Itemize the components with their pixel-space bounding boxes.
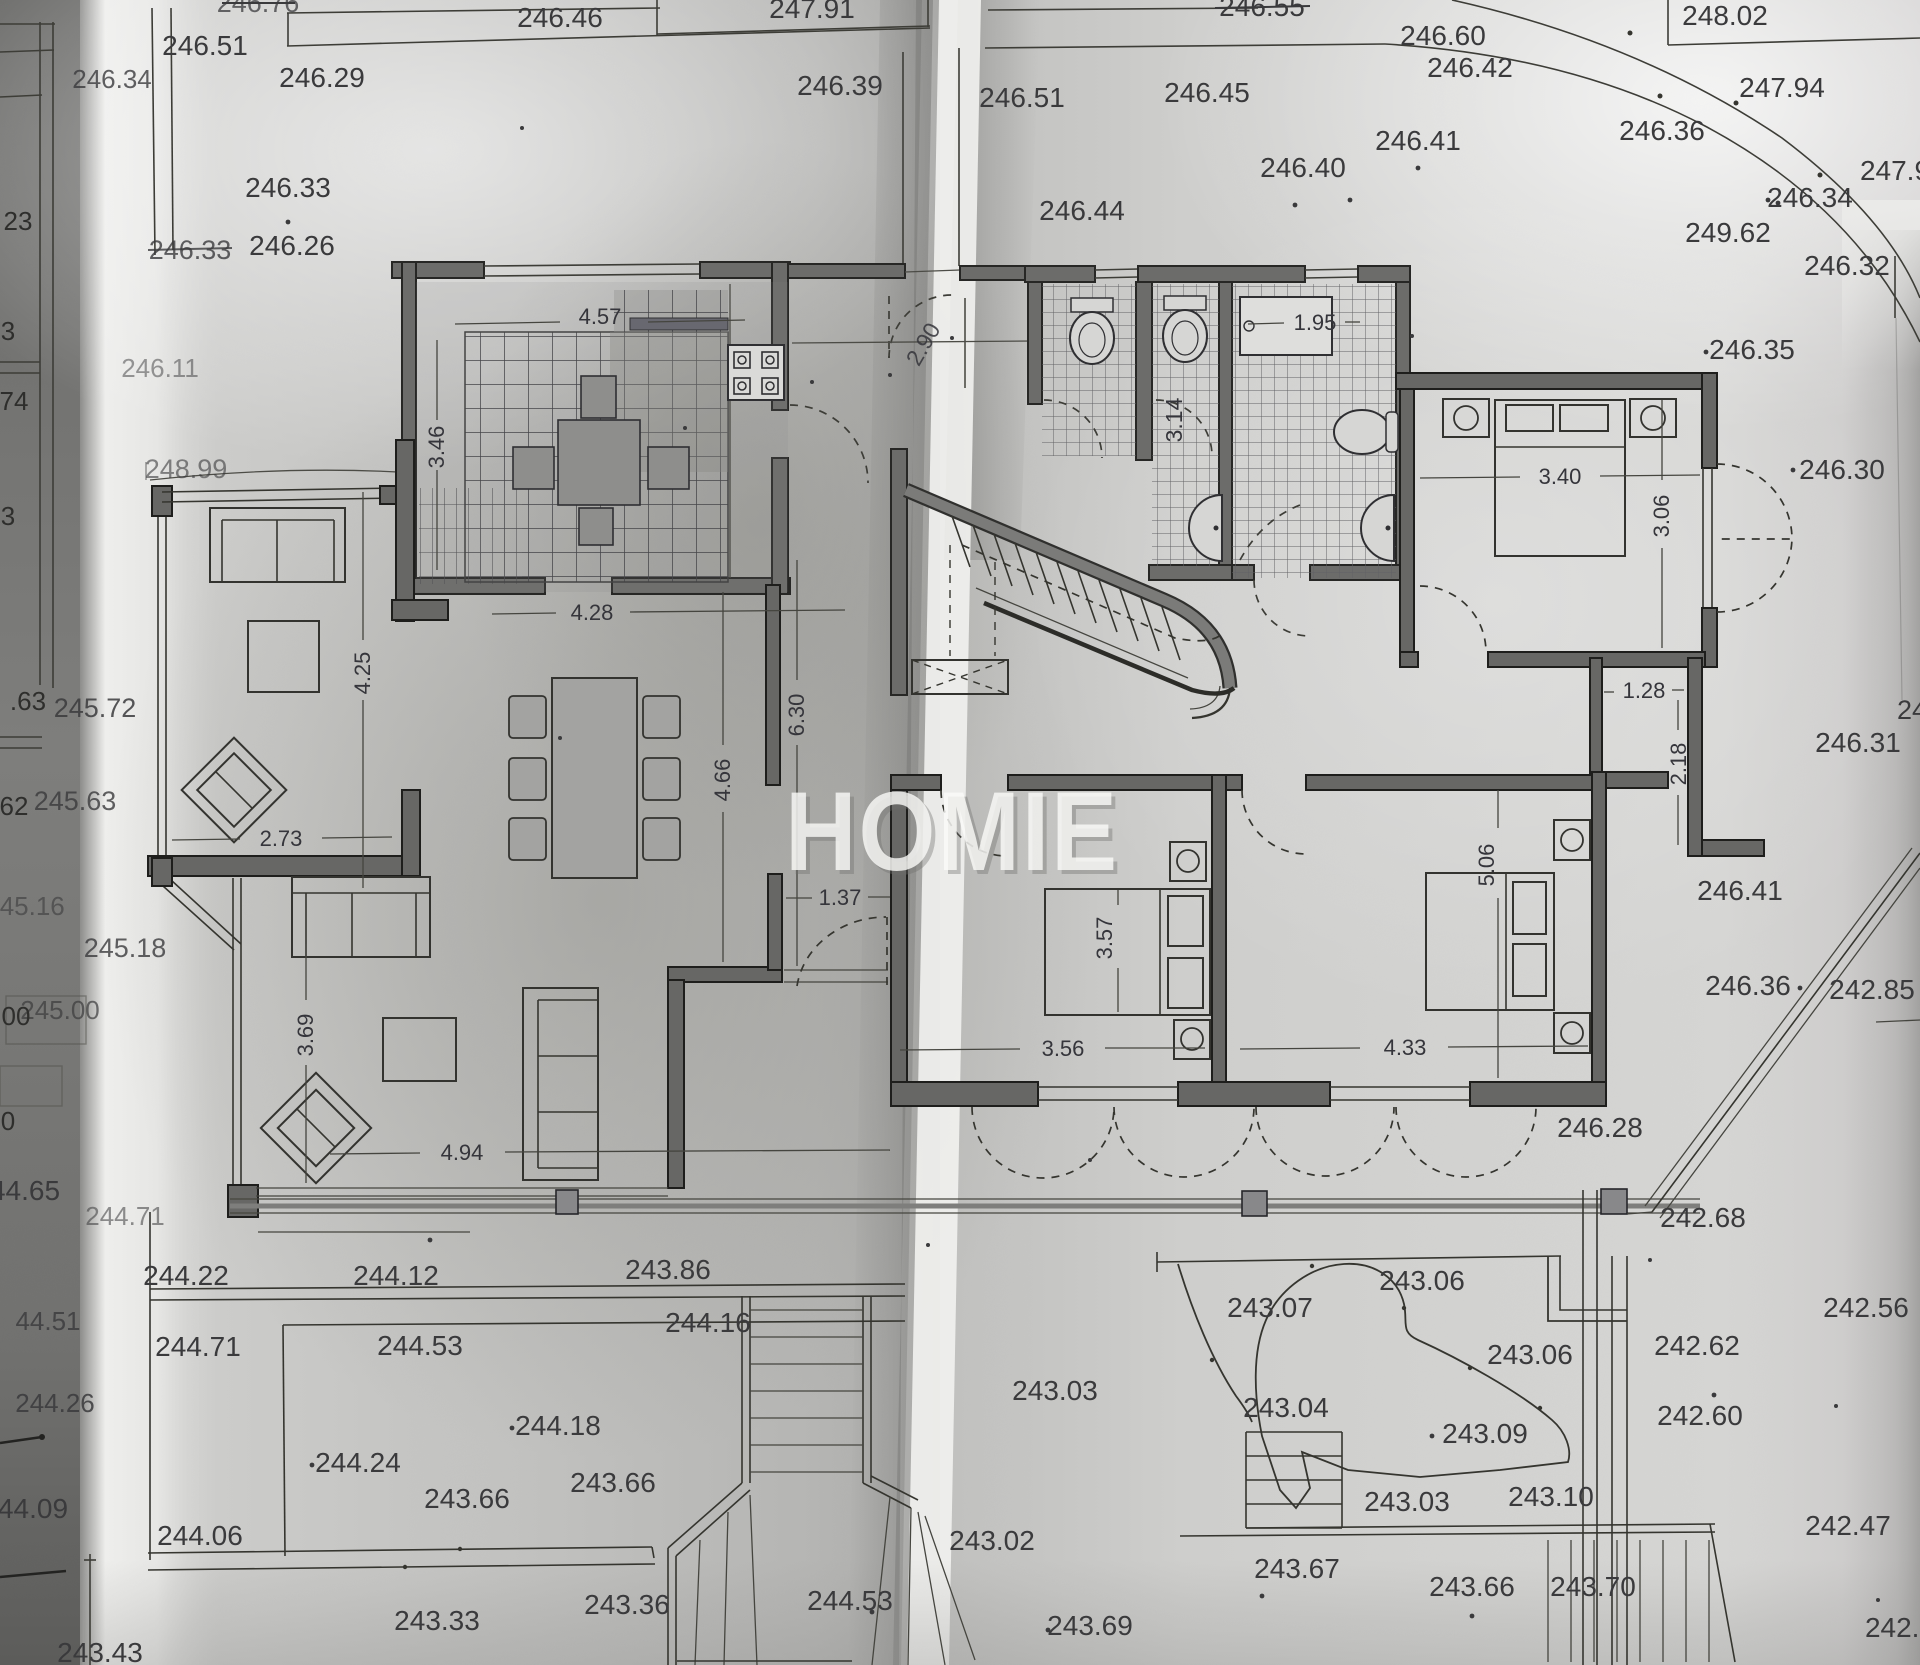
svg-text:244.12: 244.12 bbox=[353, 1260, 439, 1291]
svg-text:00: 00 bbox=[2, 1001, 31, 1031]
svg-text:5.06: 5.06 bbox=[1474, 844, 1499, 887]
svg-text:44.51: 44.51 bbox=[15, 1306, 80, 1336]
svg-text:4.94: 4.94 bbox=[441, 1140, 484, 1165]
svg-text:243.09: 243.09 bbox=[1442, 1418, 1528, 1449]
svg-text:246.36: 246.36 bbox=[1705, 970, 1791, 1001]
svg-text:249.62: 249.62 bbox=[1685, 217, 1771, 248]
svg-text:247.91: 247.91 bbox=[769, 0, 855, 24]
svg-text:243.36: 243.36 bbox=[584, 1589, 670, 1620]
svg-text:23: 23 bbox=[4, 206, 33, 236]
svg-text:244.06: 244.06 bbox=[157, 1520, 243, 1551]
svg-text:242.4: 242.4 bbox=[1865, 1612, 1920, 1643]
svg-text:244.22: 244.22 bbox=[143, 1260, 229, 1291]
svg-text:3.14: 3.14 bbox=[1161, 397, 1187, 442]
svg-text:246.28: 246.28 bbox=[1557, 1112, 1643, 1143]
svg-text:3.69: 3.69 bbox=[293, 1014, 318, 1057]
svg-text:3.57: 3.57 bbox=[1092, 917, 1117, 960]
svg-text:3.06: 3.06 bbox=[1649, 495, 1674, 538]
svg-text:245.72: 245.72 bbox=[54, 693, 137, 723]
svg-text:44.65: 44.65 bbox=[0, 1175, 60, 1206]
svg-text:243.02: 243.02 bbox=[949, 1525, 1035, 1556]
svg-text:243.06: 243.06 bbox=[1379, 1265, 1465, 1296]
svg-text:245.00: 245.00 bbox=[20, 995, 100, 1025]
svg-text:244.53: 244.53 bbox=[807, 1585, 893, 1616]
svg-text:6.30: 6.30 bbox=[784, 694, 809, 737]
svg-text:243.67: 243.67 bbox=[1254, 1553, 1340, 1584]
svg-text:246.31: 246.31 bbox=[1815, 727, 1901, 758]
svg-text:1.95: 1.95 bbox=[1294, 310, 1337, 335]
svg-text:246.46: 246.46 bbox=[517, 2, 603, 33]
svg-text:243.66: 243.66 bbox=[1429, 1571, 1515, 1602]
svg-text:242.47: 242.47 bbox=[1805, 1510, 1891, 1541]
svg-text:243.86: 243.86 bbox=[625, 1254, 711, 1285]
svg-text:3.46: 3.46 bbox=[424, 426, 449, 469]
svg-text:4.57: 4.57 bbox=[579, 304, 622, 329]
svg-text:244.71: 244.71 bbox=[85, 1201, 165, 1231]
svg-text:24: 24 bbox=[1897, 695, 1920, 725]
svg-text:246.51: 246.51 bbox=[162, 30, 248, 61]
svg-text:4.33: 4.33 bbox=[1384, 1035, 1427, 1060]
svg-text:2.73: 2.73 bbox=[260, 826, 303, 851]
svg-text:246.51: 246.51 bbox=[979, 82, 1065, 113]
svg-text:245.18: 245.18 bbox=[84, 933, 167, 963]
svg-text:242.60: 242.60 bbox=[1657, 1400, 1743, 1431]
svg-text:3.40: 3.40 bbox=[1539, 464, 1582, 489]
svg-text:246.26: 246.26 bbox=[249, 230, 335, 261]
svg-text:243.69: 243.69 bbox=[1047, 1610, 1133, 1641]
svg-text:3: 3 bbox=[1, 316, 15, 346]
svg-text:246.36: 246.36 bbox=[1619, 115, 1705, 146]
svg-text:243.66: 243.66 bbox=[570, 1467, 656, 1498]
svg-text:246.34: 246.34 bbox=[1767, 182, 1853, 213]
svg-text:1.28: 1.28 bbox=[1623, 678, 1666, 703]
svg-text:243.43: 243.43 bbox=[57, 1637, 143, 1665]
svg-text:247.94: 247.94 bbox=[1739, 72, 1825, 103]
svg-text:246.35: 246.35 bbox=[1709, 334, 1795, 365]
svg-text:246.32: 246.32 bbox=[1804, 250, 1890, 281]
svg-text:2.18: 2.18 bbox=[1666, 743, 1691, 786]
svg-text:246.41: 246.41 bbox=[1697, 875, 1783, 906]
svg-text:243.70: 243.70 bbox=[1550, 1571, 1636, 1602]
svg-text:246.11: 246.11 bbox=[121, 353, 199, 383]
svg-text:0: 0 bbox=[1, 1106, 15, 1136]
svg-text:244.16: 244.16 bbox=[665, 1307, 751, 1338]
svg-text:44.09: 44.09 bbox=[0, 1493, 68, 1524]
svg-text:246.29: 246.29 bbox=[279, 62, 365, 93]
svg-text:247.9: 247.9 bbox=[1860, 155, 1920, 186]
svg-text:HOMIE: HOMIE bbox=[785, 769, 1119, 894]
svg-text:242.62: 242.62 bbox=[1654, 1330, 1740, 1361]
svg-text:243.03: 243.03 bbox=[1012, 1375, 1098, 1406]
svg-text:246.39: 246.39 bbox=[797, 70, 883, 101]
svg-text:243.04: 243.04 bbox=[1243, 1392, 1329, 1423]
svg-text:3.56: 3.56 bbox=[1042, 1036, 1085, 1061]
svg-text:248.02: 248.02 bbox=[1682, 0, 1768, 31]
svg-text:242.68: 242.68 bbox=[1660, 1202, 1746, 1233]
svg-text:245.16: 245.16 bbox=[0, 891, 65, 921]
svg-text:244.26: 244.26 bbox=[15, 1388, 95, 1418]
svg-text:246.34: 246.34 bbox=[72, 64, 152, 94]
svg-text:248.99: 248.99 bbox=[145, 454, 228, 484]
svg-text:246.33: 246.33 bbox=[245, 172, 331, 203]
svg-text:246.30: 246.30 bbox=[1799, 454, 1885, 485]
svg-text:4.28: 4.28 bbox=[571, 600, 614, 625]
svg-text:.63: .63 bbox=[10, 686, 46, 716]
svg-text:243.03: 243.03 bbox=[1364, 1486, 1450, 1517]
svg-text:246.44: 246.44 bbox=[1039, 195, 1125, 226]
svg-text:246.55: 246.55 bbox=[1219, 0, 1305, 22]
svg-text:3: 3 bbox=[1, 501, 15, 531]
svg-text:243.66: 243.66 bbox=[424, 1483, 510, 1514]
svg-text:245.63: 245.63 bbox=[34, 786, 117, 816]
svg-text:246.41: 246.41 bbox=[1375, 125, 1461, 156]
svg-text:243.10: 243.10 bbox=[1508, 1481, 1594, 1512]
svg-text:243.07: 243.07 bbox=[1227, 1292, 1313, 1323]
svg-text:74: 74 bbox=[0, 386, 28, 416]
svg-text:244.53: 244.53 bbox=[377, 1330, 463, 1361]
svg-text:246.60: 246.60 bbox=[1400, 20, 1486, 51]
svg-text:4.25: 4.25 bbox=[350, 652, 375, 695]
svg-text:244.24: 244.24 bbox=[315, 1447, 401, 1478]
svg-text:243.06: 243.06 bbox=[1487, 1339, 1573, 1370]
svg-text:244.18: 244.18 bbox=[515, 1410, 601, 1441]
svg-text:242.56: 242.56 bbox=[1823, 1292, 1909, 1323]
svg-text:243.33: 243.33 bbox=[394, 1605, 480, 1636]
svg-text:242.85: 242.85 bbox=[1829, 974, 1915, 1005]
svg-text:246.42: 246.42 bbox=[1427, 52, 1513, 83]
svg-text:246.45: 246.45 bbox=[1164, 77, 1250, 108]
svg-text:4.66: 4.66 bbox=[710, 759, 735, 802]
svg-text:62: 62 bbox=[0, 791, 28, 821]
svg-text:244.71: 244.71 bbox=[155, 1331, 241, 1362]
svg-text:246.40: 246.40 bbox=[1260, 152, 1346, 183]
